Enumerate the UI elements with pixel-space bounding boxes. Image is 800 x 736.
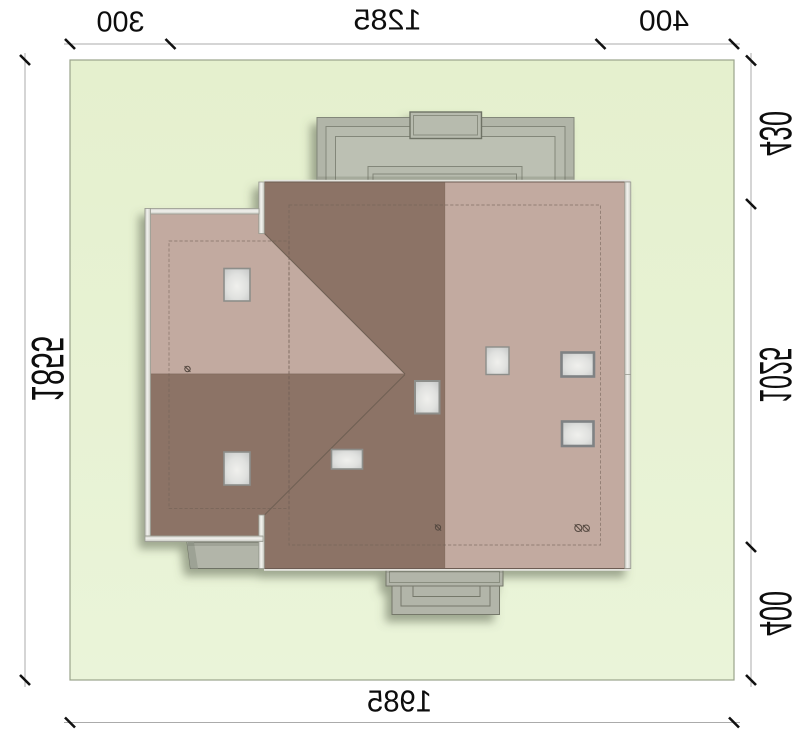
svg-text:400: 400 bbox=[639, 6, 689, 38]
svg-text:1025: 1025 bbox=[750, 347, 800, 403]
svg-text:1985: 1985 bbox=[367, 684, 432, 719]
svg-text:400: 400 bbox=[750, 591, 800, 636]
svg-text:300: 300 bbox=[97, 7, 145, 39]
svg-text:1285: 1285 bbox=[354, 5, 422, 37]
svg-text:1855: 1855 bbox=[22, 336, 73, 402]
svg-text:430: 430 bbox=[750, 111, 800, 156]
